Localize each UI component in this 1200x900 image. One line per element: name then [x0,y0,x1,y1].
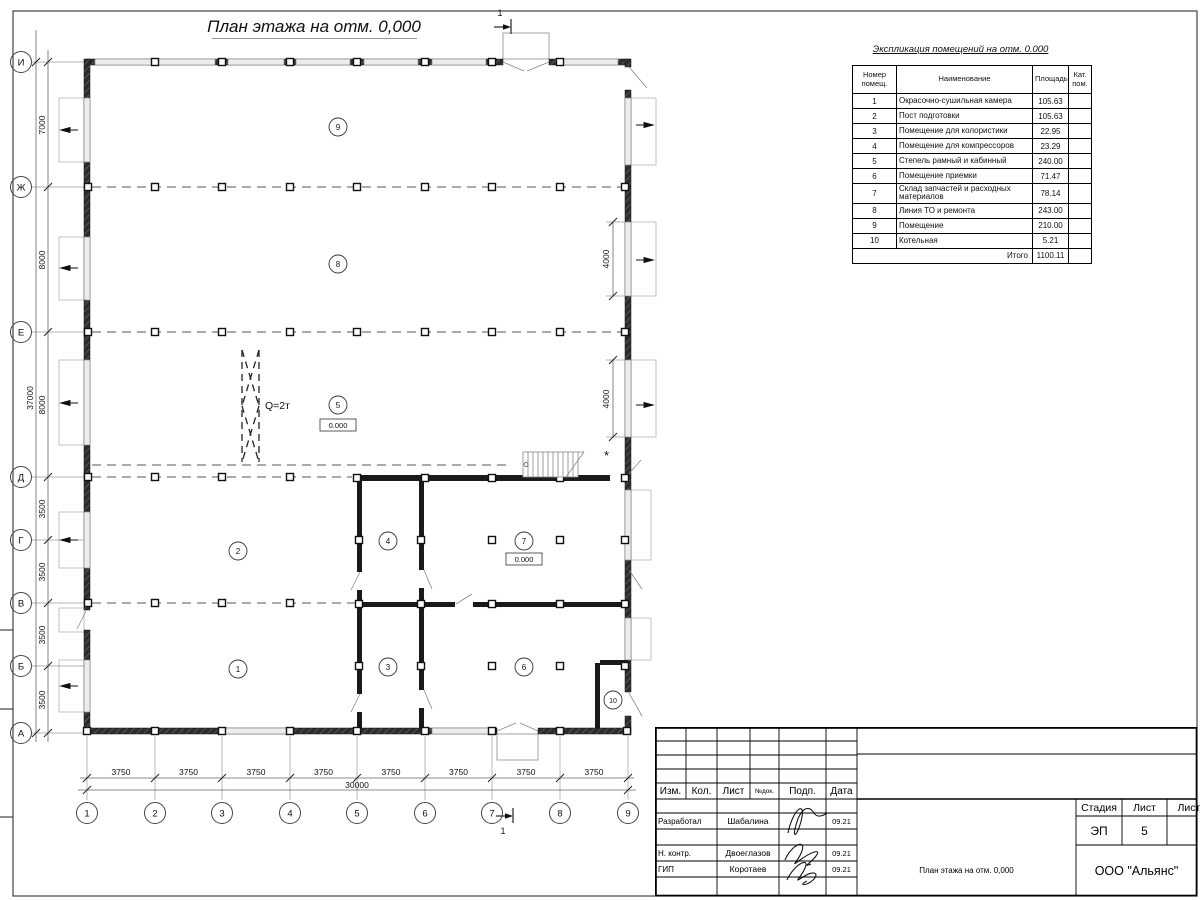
tb-name-1: Двоеглазов [717,845,779,861]
signature-razrabotal [788,809,827,835]
col-header-number: Номер помещ. [853,66,897,94]
column-axis-labels: 12 34 56 78 9 [84,809,630,820]
tb-doc-title: План этажа на отм. 0,000 [857,845,1076,896]
dimension-lines [36,30,636,790]
svg-text:3750: 3750 [112,767,131,777]
tb-sheets-label: Листов [1167,799,1200,816]
total-value: 1100.11 [1033,248,1069,263]
room-number-labels: 12 34 56 78 910 [236,123,617,705]
table-row: 8Линия ТО и ремонта243.00 [853,203,1092,218]
drawing-sheet: Q=2т 1 1 * ИЖ ЕД ГВ БА [0,0,1200,900]
stair-asterisk-mark: * [604,448,609,463]
tb-header-kol: Кол. [686,783,717,799]
staircase [523,452,584,477]
svg-text:8000: 8000 [37,250,47,269]
col-header-name: Наименование [897,66,1033,94]
col-header-area: Площадь [1033,66,1069,94]
svg-text:9: 9 [336,123,341,132]
svg-text:0.000: 0.000 [515,555,534,564]
room-number-bubbles [229,118,622,709]
svg-text:7: 7 [522,537,527,546]
tb-company: ООО "Альянс" [1076,845,1197,896]
svg-text:3750: 3750 [449,767,468,777]
svg-text:7000: 7000 [37,115,47,134]
svg-text:10: 10 [609,698,617,705]
svg-text:4000: 4000 [601,389,611,408]
col-header-category: Кат. пом. [1069,66,1092,94]
svg-text:3750: 3750 [517,767,536,777]
tb-sheet-value: 5 [1122,816,1167,845]
svg-text:3750: 3750 [314,767,333,777]
tb-header-podp: Подп. [779,783,826,799]
svg-text:3500: 3500 [37,690,47,709]
tb-date-2: 09.21 [826,861,857,877]
svg-text:3750: 3750 [247,767,266,777]
svg-text:2: 2 [236,547,241,556]
title-block: Изм. Кол. Лист №док. Подп. Дата Разработ… [655,727,1200,897]
svg-text:37000: 37000 [25,386,35,410]
svg-text:1: 1 [497,8,502,18]
table-row: 7Склад запчастей и расходных материалов7… [853,184,1092,204]
svg-text:3750: 3750 [179,767,198,777]
svg-text:И: И [18,58,25,69]
table-row: 10Котельная5.21 [853,233,1092,248]
level-marks: 0.000 0.000 [320,419,542,565]
svg-text:5: 5 [336,401,341,410]
svg-text:1: 1 [84,809,89,820]
tb-name-0: Шабалина [717,813,779,829]
svg-text:1: 1 [500,826,505,836]
signatures [785,809,827,885]
svg-text:8: 8 [336,260,341,269]
svg-text:6: 6 [522,663,527,672]
explication-table: Номер помещ. Наименование Площадь Кат. п… [852,65,1092,264]
total-label: Итого [853,248,1033,263]
table-row: 5Степель рамный и кабинный240.00 [853,154,1092,169]
svg-text:Ж: Ж [17,183,26,194]
tb-stage-label: Стадия [1076,799,1122,816]
table-row: 3Помещение для колористики22.95 [853,124,1092,139]
crane-capacity-label: Q=2т [265,400,290,412]
plan-title: План этажа на отм. 0,000 [207,17,421,36]
signature-gip [787,862,816,884]
section-mark-top: 1 [494,8,511,34]
svg-text:В: В [18,599,24,610]
svg-text:4: 4 [386,537,391,546]
table-total-row: Итого 1100.11 [853,248,1092,263]
table-row: 1Окрасочно-сушильная камера105.63 [853,94,1092,109]
svg-text:30000: 30000 [345,780,369,790]
svg-text:5: 5 [354,809,359,820]
tb-date-1: 09.21 [826,845,857,861]
tb-header-ndoc: №док. [750,783,779,799]
svg-text:4: 4 [287,809,292,820]
svg-text:4000: 4000 [601,249,611,268]
svg-text:3750: 3750 [585,767,604,777]
svg-text:3750: 3750 [382,767,401,777]
right-dimension-labels: 4000 4000 [601,249,611,408]
entrance-vestibules [497,33,549,760]
table-row: 6Помещение приемки71.47 [853,169,1092,184]
svg-text:Б: Б [18,662,24,673]
svg-text:7: 7 [489,809,494,820]
tb-date-0: 09.21 [826,813,857,829]
tb-role-2: ГИП [658,861,716,877]
svg-text:8000: 8000 [37,395,47,414]
svg-text:8: 8 [557,809,562,820]
svg-text:9: 9 [625,809,630,820]
svg-text:2: 2 [152,809,157,820]
tb-role-1: Н. контр. [658,845,716,861]
table-row: 4Помещение для компрессоров23.29 [853,139,1092,154]
explication-title: Экспликация помещений на отм. 0.000 [842,44,1079,55]
svg-text:Г: Г [18,536,23,547]
svg-text:1: 1 [236,665,241,674]
svg-text:0.000: 0.000 [329,421,348,430]
tb-stage-value: ЭП [1076,816,1122,845]
svg-text:Д: Д [18,473,25,484]
svg-text:6: 6 [422,809,427,820]
tb-header-list: Лист [717,783,750,799]
svg-text:А: А [18,729,25,740]
svg-text:3500: 3500 [37,562,47,581]
crane-zone [242,350,259,462]
tb-header-data: Дата [826,783,857,799]
explication-header-row: Номер помещ. Наименование Площадь Кат. п… [853,66,1092,94]
explication-panel: Экспликация помещений на отм. 0.000 Номе… [852,44,1079,264]
tb-name-2: Коротаев [717,861,779,877]
svg-text:3: 3 [386,663,391,672]
table-row: 9Помещение210.00 [853,218,1092,233]
svg-text:3500: 3500 [37,625,47,644]
section-mark-bottom: 1 [496,808,513,836]
table-row: 2Пост подготовки105.63 [853,109,1092,124]
svg-text:Е: Е [18,328,24,339]
signature-nkontr [785,844,818,865]
tb-role-0: Разработал [658,813,716,829]
tb-header-izm: Изм. [655,783,686,799]
bottom-dimension-labels: 37503750 37503750 37503750 37503750 3000… [112,767,604,790]
svg-text:3: 3 [219,809,224,820]
svg-text:3500: 3500 [37,499,47,518]
tb-sheet-label: Лист [1122,799,1167,816]
